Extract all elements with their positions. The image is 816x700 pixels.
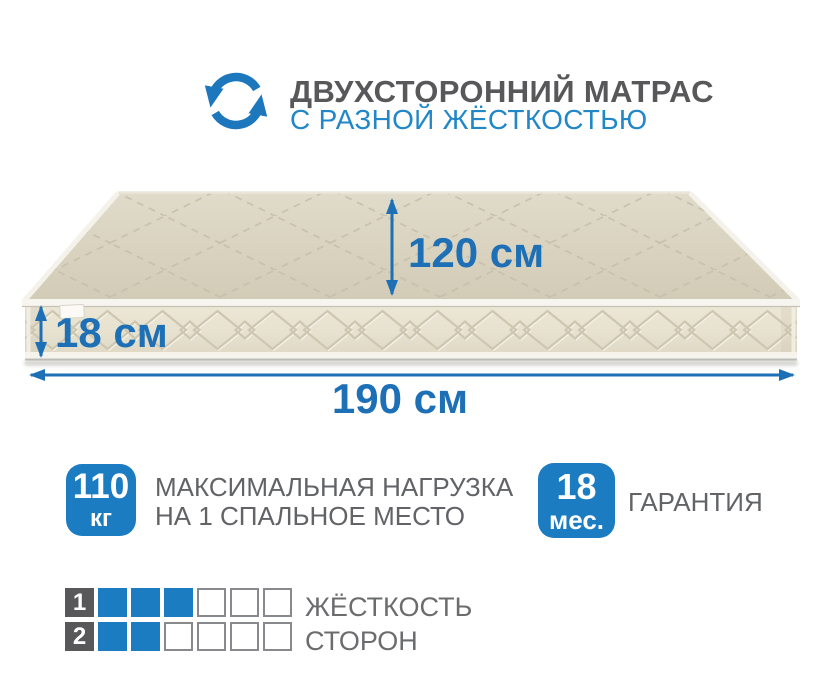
- firmness-cell-filled: [131, 588, 160, 617]
- firmness-scale: 12: [65, 588, 292, 651]
- firmness-cell-empty: [230, 622, 259, 651]
- warranty-unit: мес.: [549, 507, 604, 533]
- firmness-cell-filled: [164, 588, 193, 617]
- firmness-cell-empty: [230, 588, 259, 617]
- max-load-description: МАКСИМАЛЬНАЯ НАГРУЗКА НА 1 СПАЛЬНОЕ МЕСТ…: [155, 473, 513, 531]
- firmness-cell-filled: [98, 588, 127, 617]
- firmness-cell-empty: [164, 622, 193, 651]
- firmness-cell-empty: [197, 588, 226, 617]
- mattress-infographic: ДВУХСТОРОННИЙ МАТРАС С РАЗНОЙ ЖЁСТКОСТЬЮ: [0, 0, 816, 700]
- firmness-cell-filled: [98, 622, 127, 651]
- warranty-value: 18: [556, 469, 596, 505]
- depth-dimension-label: 120 см: [408, 229, 544, 276]
- max-load-description-line1: МАКСИМАЛЬНАЯ НАГРУЗКА: [155, 473, 513, 502]
- warranty-badge: 18 мес.: [538, 463, 615, 538]
- firmness-label-line1: ЖЁСТКОСТЬ: [305, 590, 472, 624]
- firmness-row-number: 1: [65, 588, 94, 617]
- firmness-cell-empty: [263, 622, 292, 651]
- mattress-shadow: [24, 360, 798, 366]
- firmness-cell-empty: [197, 622, 226, 651]
- firmness-cell-filled: [131, 622, 160, 651]
- length-dimension-label: 190 см: [332, 375, 468, 422]
- firmness-labels: ЖЁСТКОСТЬ СТОРОН: [305, 590, 472, 658]
- max-load-value: 110: [73, 469, 129, 504]
- warranty-description: ГАРАНТИЯ: [628, 488, 763, 517]
- firmness-row-number: 2: [65, 622, 94, 651]
- max-load-description-line2: НА 1 СПАЛЬНОЕ МЕСТО: [155, 502, 513, 531]
- max-load-unit: кг: [90, 507, 112, 531]
- height-dimension-label: 18 см: [55, 309, 168, 356]
- firmness-cell-empty: [263, 588, 292, 617]
- mattress-illustration: 120 см 18 см 190 см: [0, 0, 816, 450]
- firmness-label-line2: СТОРОН: [305, 624, 472, 658]
- max-load-badge: 110 кг: [66, 464, 136, 536]
- firmness-row: 2: [65, 622, 292, 651]
- firmness-row: 1: [65, 588, 292, 617]
